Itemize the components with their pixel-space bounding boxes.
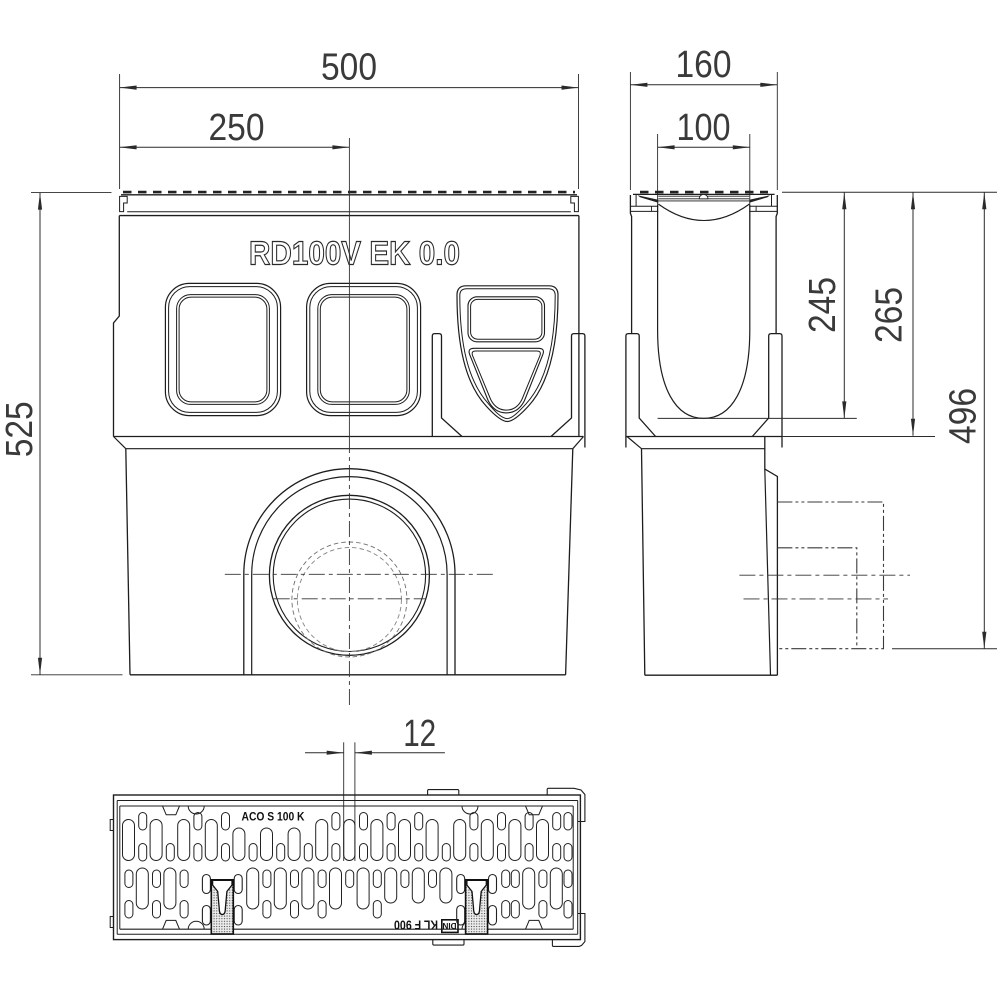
- svg-text:12: 12: [403, 713, 436, 755]
- svg-text:DIN: DIN: [442, 921, 456, 930]
- svg-text:500: 500: [321, 47, 377, 89]
- svg-text:525: 525: [0, 401, 41, 457]
- svg-text:RD100V EK 0.0: RD100V EK 0.0: [249, 235, 460, 272]
- svg-text:160: 160: [676, 44, 732, 86]
- svg-text:250: 250: [209, 107, 265, 149]
- svg-text:496: 496: [943, 388, 985, 444]
- svg-text:ACO S 100 K: ACO S 100 K: [242, 810, 305, 824]
- svg-text:265: 265: [869, 287, 911, 343]
- svg-text:KL F 900: KL F 900: [394, 918, 438, 932]
- svg-text:245: 245: [802, 277, 844, 333]
- svg-text:100: 100: [677, 107, 731, 149]
